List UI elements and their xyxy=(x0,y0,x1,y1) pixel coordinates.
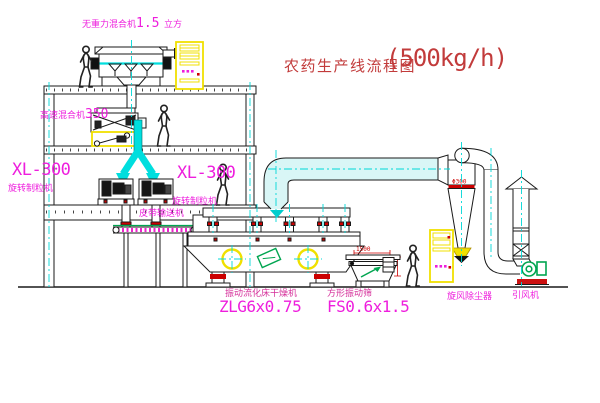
label-high-speed-mixer: 高速混合机350 xyxy=(40,106,109,122)
worker-ground xyxy=(407,245,420,286)
worker-roof xyxy=(80,46,93,87)
diagram-capacity: (500kg/h) xyxy=(386,44,507,72)
label-fan: 引风机 xyxy=(512,291,539,300)
gravity-mixer-name: 无重力混合机 xyxy=(82,19,136,29)
vibrating-sieve: 1500 xyxy=(346,246,401,287)
label-gravity-mixer: 无重力混合机1.5 立方 xyxy=(82,15,182,31)
label-granulator-left-name: 旋转制粒机 xyxy=(8,184,53,193)
gravity-mixer-volume: 1.5 xyxy=(136,16,159,31)
label-granulator-right-name: 旋转制粒机 xyxy=(172,197,217,206)
sieve-length-dim: 1500 xyxy=(356,246,371,253)
gravity-mixer-unit: 立方 xyxy=(164,19,182,29)
label-dryer-model: ZLG6x0.75 xyxy=(219,299,301,315)
label-sieve-model: FS0.6x1.5 xyxy=(327,299,409,315)
gravity-free-mixer xyxy=(91,47,175,108)
high-speed-mixer-name: 高速混合机 xyxy=(40,110,85,120)
label-belt-conveyor: 皮带输送机 xyxy=(139,209,184,218)
granulator-right-machine xyxy=(138,179,174,205)
control-cabinet-ground xyxy=(430,230,453,282)
label-cyclone: 旋风除尘器 xyxy=(447,292,492,301)
label-granulator-left-model: XL-300 xyxy=(12,162,70,179)
pesticide-line-flow-diagram: Φ300 xyxy=(0,0,600,403)
cyclone-size-dim: Φ300 xyxy=(452,179,467,186)
high-speed-mixer-size: 350 xyxy=(85,107,108,122)
granulator-left-machine xyxy=(98,179,134,205)
belt-conveyor-machine xyxy=(113,226,197,234)
control-cabinet-roof xyxy=(176,42,203,89)
worker-floor2 xyxy=(158,105,171,146)
fluid-bed-dryer xyxy=(184,208,364,287)
label-granulator-right-model: XL-300 xyxy=(177,165,235,182)
